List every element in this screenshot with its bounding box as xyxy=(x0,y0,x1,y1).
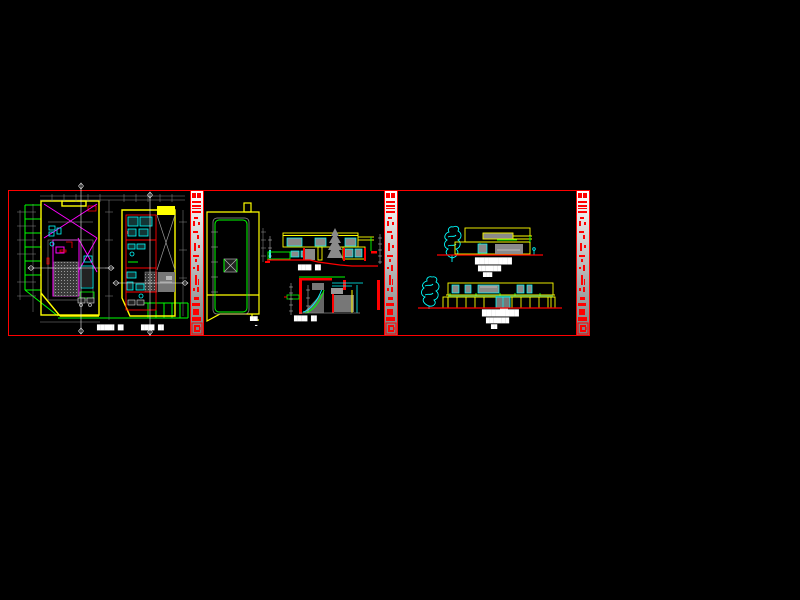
sheet-1-floor-plans[interactable] xyxy=(17,183,188,336)
title-block-strip-3[interactable] xyxy=(576,190,590,336)
roof-plan-title: ██▌ xyxy=(250,317,259,321)
drawing-layer xyxy=(0,0,800,600)
title-block-strip-2[interactable] xyxy=(384,190,398,336)
tree-icon xyxy=(422,277,440,309)
elevation-2-title: ████████ xyxy=(482,311,519,317)
void-cross xyxy=(157,215,175,270)
section-2-title: ███▌ █▌ xyxy=(294,317,319,322)
section-windows xyxy=(287,238,362,257)
plan-a-title: ████▌ █▌ xyxy=(97,326,126,331)
elevation-1-title: ████████ xyxy=(475,259,512,265)
cad-canvas[interactable]: ████▌ █▌ ███▌ █▌ ██▌ ▂ ███▌ █▌ ███▌ █▌ █… xyxy=(0,0,800,600)
section-a-a[interactable] xyxy=(284,277,380,315)
roof-plan-scale: ▂ xyxy=(255,323,257,326)
bath-fixtures xyxy=(78,298,94,307)
tree-icon xyxy=(327,228,343,258)
skylight xyxy=(224,259,237,272)
floor-plan-a[interactable] xyxy=(41,201,99,316)
elevation-2[interactable] xyxy=(418,277,562,310)
title-block-strip-1[interactable] xyxy=(190,190,204,336)
person-icon xyxy=(533,248,536,255)
floor-plan-b[interactable] xyxy=(122,206,175,316)
elevation-1-scale: ███ xyxy=(483,273,492,277)
roof-plan[interactable] xyxy=(207,203,271,321)
elevation-2-subtitle: ██████ xyxy=(486,319,509,324)
courtyard-hatch xyxy=(54,262,78,296)
elevation-1[interactable] xyxy=(437,226,543,262)
windows xyxy=(452,285,532,293)
section-1-title: ███▌ █▌ xyxy=(298,266,323,271)
section-1-1[interactable] xyxy=(267,228,382,266)
plan-b-title: ███▌ █▌ xyxy=(141,326,166,331)
roof-dimensions xyxy=(261,228,266,262)
elevation-2-scale: ██ xyxy=(491,325,497,329)
tree-icon xyxy=(445,226,462,262)
sheet-2-roof-and-sections[interactable] xyxy=(207,203,382,321)
